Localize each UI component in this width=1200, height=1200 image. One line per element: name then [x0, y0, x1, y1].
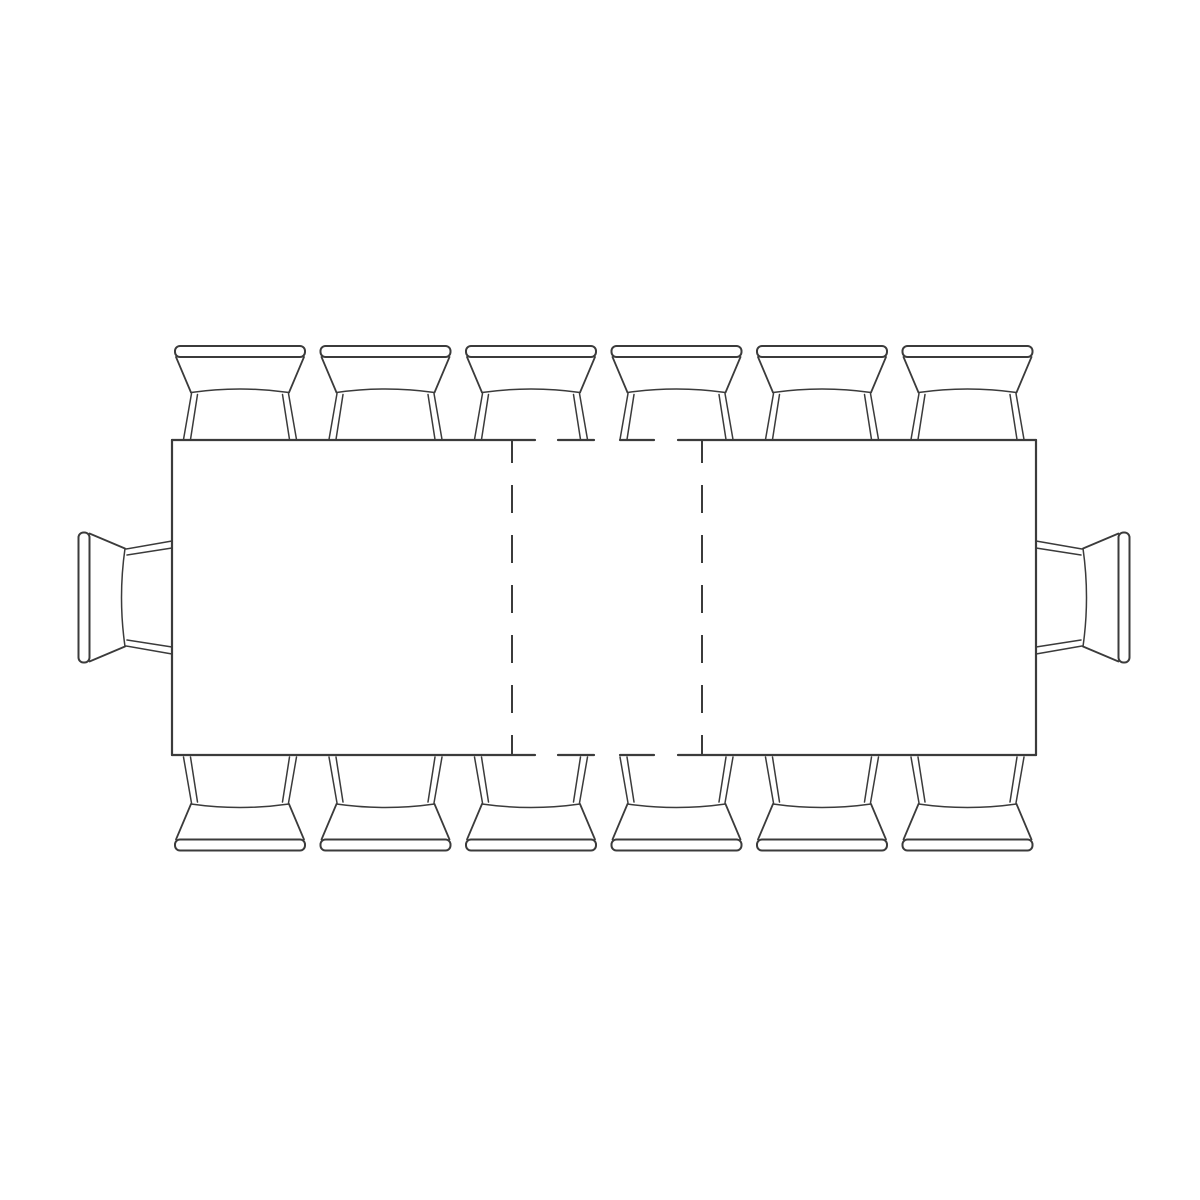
chair-top-6 [903, 346, 1033, 440]
chair-top-3 [466, 346, 596, 440]
chair-bottom-2 [321, 757, 451, 851]
chair-right-end [1036, 533, 1130, 663]
chair-bottom-3 [466, 757, 596, 851]
chair-top-1 [175, 346, 305, 440]
chair-top-4 [612, 346, 742, 440]
chair-top-2 [321, 346, 451, 440]
chair-bottom-4 [612, 757, 742, 851]
chair-bottom-1 [175, 757, 305, 851]
dining-set-floor-plan [0, 0, 1200, 1200]
dining-table [172, 440, 1036, 755]
chair-left-end [79, 533, 173, 663]
chair-bottom-6 [903, 757, 1033, 851]
chairs [79, 346, 1130, 851]
floor-plan-page [0, 0, 1200, 1200]
table-extension-leaf [512, 441, 702, 755]
chair-top-5 [757, 346, 887, 440]
chair-bottom-5 [757, 757, 887, 851]
